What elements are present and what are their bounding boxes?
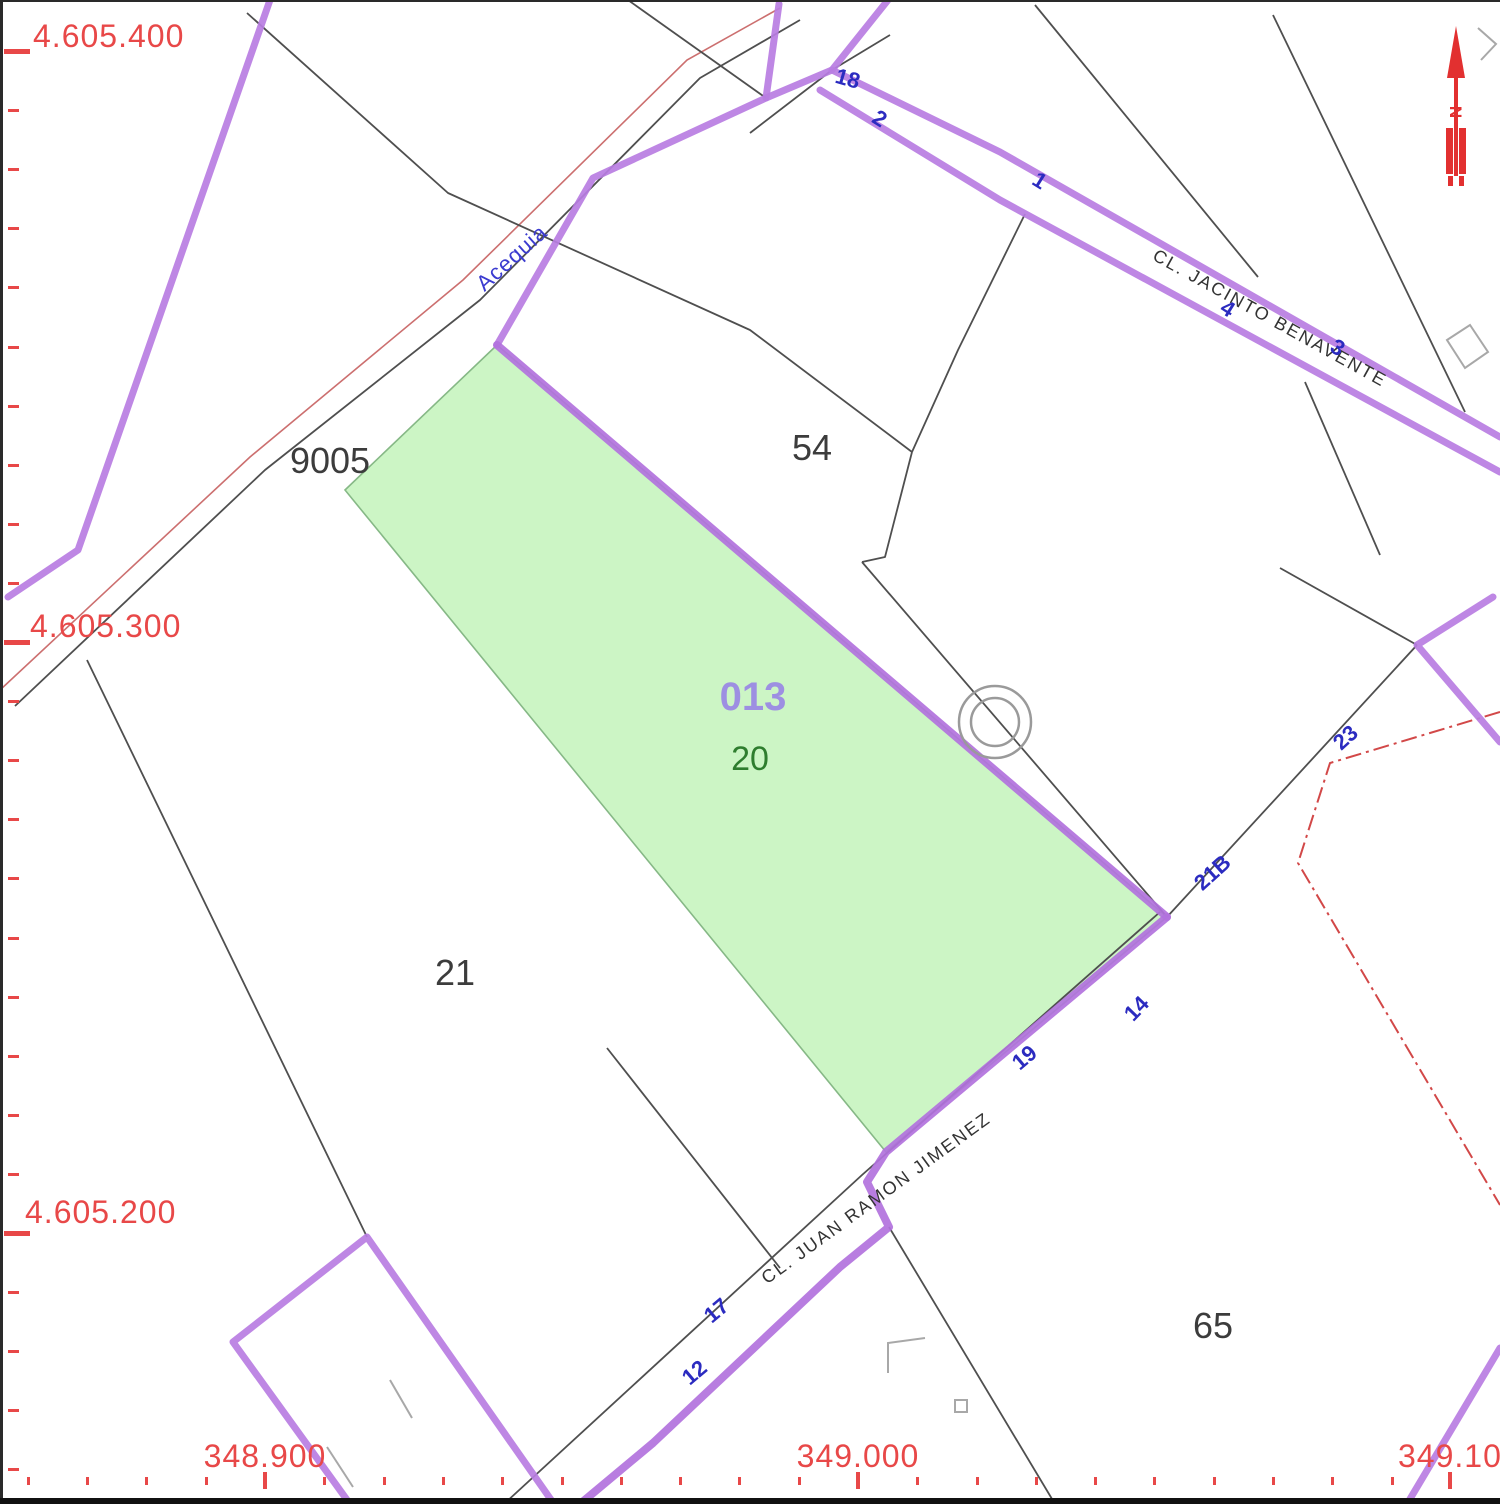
street-name-jacinto-benavente: CL. JACINTO BENAVENTE bbox=[1150, 245, 1391, 391]
north-arrow-label: N bbox=[1446, 106, 1465, 118]
parcel-label-21: 21 bbox=[435, 952, 475, 993]
municipal-boundary-line bbox=[1298, 712, 1500, 1205]
parcel-boundary-line bbox=[1280, 568, 1417, 645]
parcel-corner-mark bbox=[1478, 28, 1496, 60]
north-arrow-icon: N bbox=[1446, 26, 1466, 186]
cadastral-map-canvas[interactable]: 9005 54 21 65 013 20 Acequia CL. JACINTO… bbox=[0, 0, 1500, 1504]
house-number: 14 bbox=[1119, 990, 1155, 1026]
acequia-road-edge-east bbox=[497, 4, 779, 345]
parcel-boundary-line bbox=[1305, 382, 1380, 555]
building-outline bbox=[888, 1338, 925, 1373]
cadastral-map-viewport[interactable]: 9005 54 21 65 013 20 Acequia CL. JACINTO… bbox=[0, 0, 1500, 1504]
house-number: 18 bbox=[833, 63, 863, 94]
road-edge-southeast bbox=[1407, 1348, 1500, 1504]
map-border-top bbox=[0, 0, 1500, 2]
street-name-acequia: Acequia bbox=[471, 219, 552, 295]
well-symbol-inner bbox=[971, 698, 1019, 746]
parcel-label-54: 54 bbox=[792, 427, 832, 468]
house-number: 12 bbox=[677, 1355, 712, 1390]
parcel-boundary-line bbox=[912, 214, 1025, 452]
parcel-boundary-line bbox=[607, 1048, 780, 1268]
map-border-bottom bbox=[0, 1498, 1500, 1504]
parcel-boundary-line bbox=[87, 660, 367, 1237]
building-outline bbox=[955, 1400, 967, 1412]
grid-y-label: 4.605.200 bbox=[25, 1194, 176, 1230]
parcel-label-65: 65 bbox=[1193, 1305, 1233, 1346]
street-jacinto-edge-south bbox=[820, 90, 1500, 472]
grid-x-label: 349.000 bbox=[797, 1438, 920, 1474]
parcel-boundary-line bbox=[1273, 15, 1465, 412]
street-end-cap bbox=[766, 0, 888, 98]
parcel-label-9005: 9005 bbox=[290, 440, 370, 481]
acequia-road-edge-west bbox=[8, 0, 270, 597]
house-number: 21B bbox=[1189, 850, 1236, 896]
parcel-boundary-line bbox=[862, 452, 912, 562]
parcel-boundary-line bbox=[628, 0, 766, 98]
grid-y-label: 4.605.300 bbox=[30, 608, 181, 644]
parcel-label-20: 20 bbox=[731, 740, 769, 778]
map-border-left bbox=[0, 0, 3, 1504]
house-number: 23 bbox=[1328, 720, 1363, 755]
road-junction-east bbox=[1417, 597, 1500, 742]
selected-parcel-code: 013 bbox=[720, 675, 787, 719]
building-outline bbox=[1447, 325, 1488, 368]
grid-x-label: 348.900 bbox=[204, 1438, 327, 1474]
grid-x-label: 349.100 bbox=[1398, 1438, 1500, 1474]
building-outline bbox=[390, 1380, 412, 1418]
grid-y-label: 4.605.400 bbox=[33, 18, 184, 54]
